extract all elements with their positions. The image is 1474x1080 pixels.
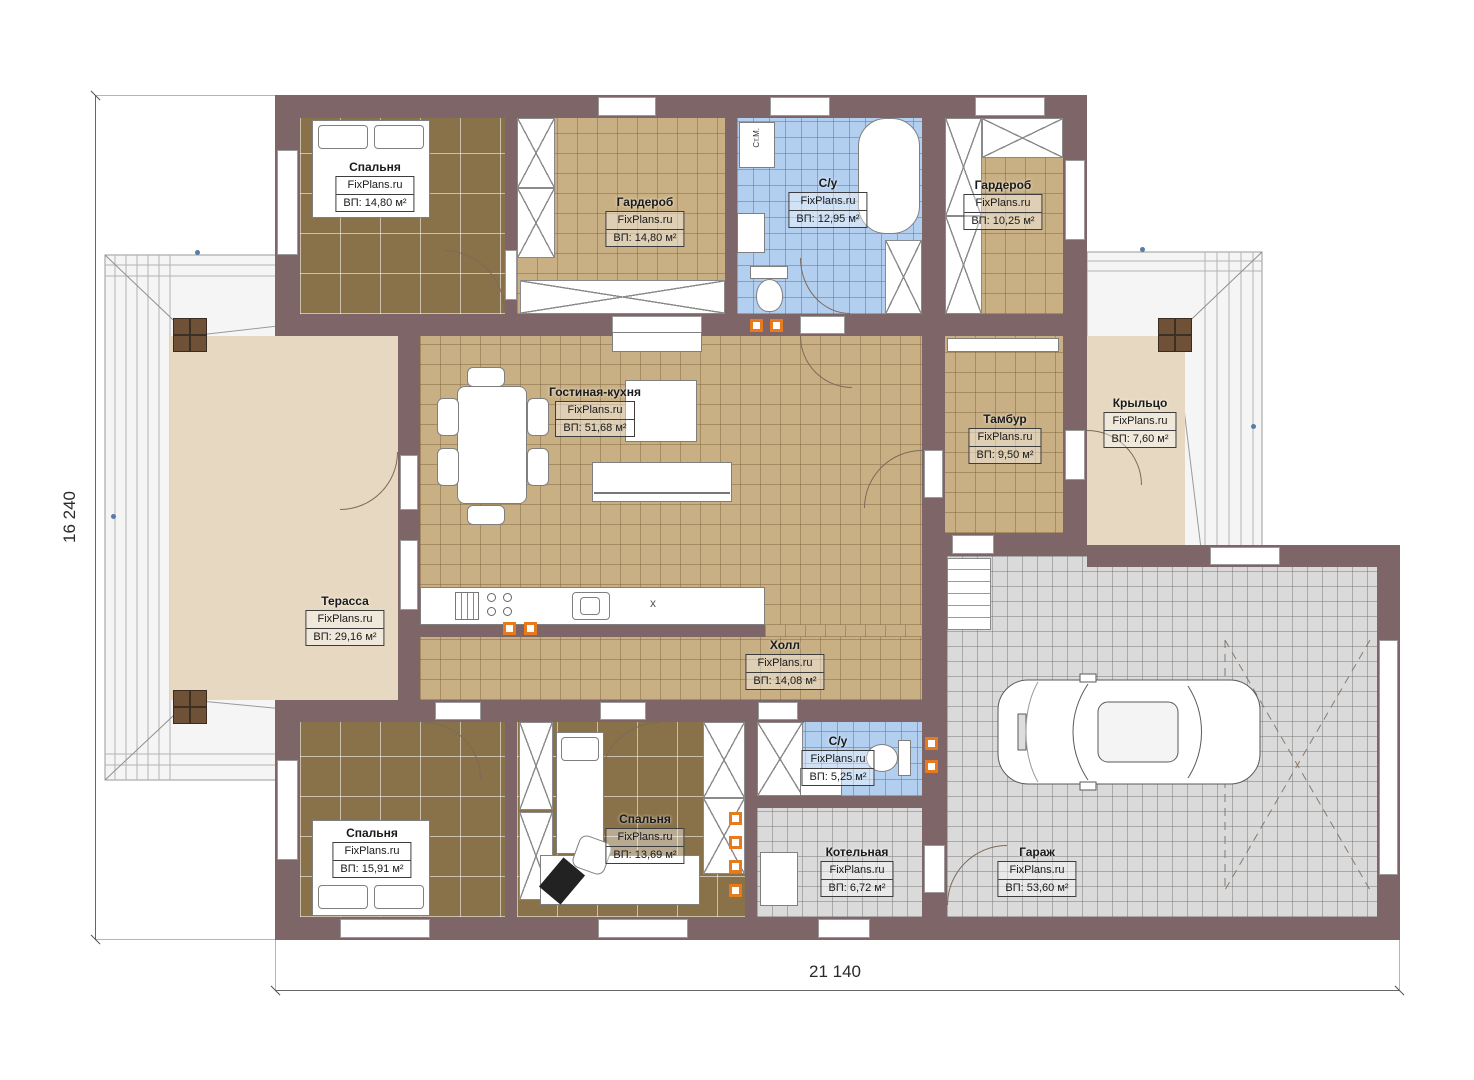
room-label-tambour: Тамбур FixPlans.ruВП: 9,50 м² — [968, 412, 1041, 464]
watermark: FixPlans.ru — [606, 829, 683, 847]
closet-icon — [520, 280, 725, 314]
door-bedroom-1 — [505, 250, 517, 300]
pillow — [561, 737, 599, 761]
door-boiler-garage — [924, 845, 945, 893]
room-name: Холл — [745, 638, 824, 652]
dimension-line-vertical — [95, 95, 96, 940]
wall-ward1-bath1 — [725, 118, 737, 314]
window-bedroom-1 — [277, 150, 298, 255]
wall-living-tambour — [922, 314, 945, 556]
room-name: Гараж — [997, 845, 1076, 859]
pillow — [374, 125, 424, 149]
room-area: ВП: 10,25 м² — [964, 213, 1041, 230]
window-bedroom-2-bottom — [340, 919, 430, 938]
wall-top — [275, 95, 1087, 118]
window-bathroom-1 — [770, 97, 830, 116]
terrace-column — [173, 690, 207, 724]
floor-plan: Ст.М. x — [0, 0, 1474, 1080]
room-area: ВП: 15,91 м² — [333, 861, 410, 878]
room-name: Спальня — [335, 160, 414, 174]
toilet-bowl-1 — [756, 279, 783, 312]
floor-hall-bridge — [765, 625, 922, 637]
extension-line — [275, 940, 276, 990]
door-bathroom-1 — [800, 316, 845, 334]
closet-icon — [703, 722, 745, 798]
window-wardrobe-1 — [598, 97, 656, 116]
door-boiler-exterior — [818, 919, 870, 938]
watermark: FixPlans.ru — [821, 862, 892, 880]
room-name: Гостиная-кухня — [549, 385, 641, 399]
room-name: Котельная — [820, 845, 893, 859]
door-tambour-garage — [952, 535, 994, 554]
garage-entry-steps — [947, 558, 991, 630]
vent-marker — [524, 622, 537, 635]
dishwasher-icon — [455, 592, 479, 620]
counter-mark: x — [650, 596, 656, 610]
chair — [467, 367, 505, 387]
room-name: С/у — [788, 176, 867, 190]
wall-living-terrace — [398, 314, 420, 722]
dining-table — [457, 386, 527, 504]
door-bathroom-2 — [758, 702, 798, 720]
watermark: FixPlans.ru — [802, 751, 873, 769]
vent-marker — [750, 319, 763, 332]
toilet-tank-1 — [750, 266, 788, 279]
stove-burner-icon — [487, 607, 496, 616]
boiler-unit — [760, 852, 798, 906]
wall-bed2-bed3 — [505, 722, 517, 917]
room-name: Терасса — [305, 594, 384, 608]
window-wardrobe-2-right — [1065, 160, 1085, 240]
chair — [467, 505, 505, 525]
vent-marker — [503, 622, 516, 635]
window-bedroom-3-bottom — [598, 919, 688, 938]
room-name: С/у — [801, 734, 874, 748]
roof-node-dot — [1251, 424, 1256, 429]
vent-marker — [729, 884, 742, 897]
vent-marker — [729, 812, 742, 825]
room-area: ВП: 14,08 м² — [746, 673, 823, 690]
room-area: ВП: 53,60 м² — [998, 880, 1075, 897]
door-terrace — [400, 455, 418, 510]
room-name: Гардероб — [605, 195, 684, 209]
room-label-bathroom-2: С/у FixPlans.ruВП: 5,25 м² — [801, 734, 874, 786]
tv-bench — [612, 332, 702, 352]
door-tambour-porch — [1065, 430, 1085, 480]
room-label-garage: Гараж FixPlans.ruВП: 53,60 м² — [997, 845, 1076, 897]
room-area: ВП: 14,80 м² — [606, 230, 683, 247]
room-label-bedroom-2: Спальня FixPlans.ruВП: 15,91 м² — [332, 826, 411, 878]
stove-burner-icon — [487, 593, 496, 602]
dimension-height: 16 240 — [60, 467, 80, 567]
room-label-bedroom-3: Спальня FixPlans.ruВП: 13,69 м² — [605, 812, 684, 864]
room-label-bedroom-1: Спальня FixPlans.ruВП: 14,80 м² — [335, 160, 414, 212]
pillow — [318, 885, 368, 909]
vent-marker — [925, 760, 938, 773]
wall-bath1-ward2 — [922, 95, 945, 336]
stove-burner-icon — [503, 607, 512, 616]
pillow — [318, 125, 368, 149]
chair — [527, 448, 549, 486]
closet-icon — [982, 118, 1063, 158]
floor-hall — [420, 637, 922, 700]
room-label-terrace: Терасса FixPlans.ruВП: 29,16 м² — [305, 594, 384, 646]
kitchen-sink-basin — [580, 597, 600, 615]
chair — [437, 448, 459, 486]
closet-icon — [945, 216, 982, 314]
room-label-living-kitchen: Гостиная-кухня FixPlans.ruВП: 51,68 м² — [549, 385, 641, 437]
wall-bed3-bath2 — [745, 722, 757, 917]
room-area: ВП: 29,16 м² — [306, 629, 383, 646]
watermark: FixPlans.ru — [789, 193, 866, 211]
watermark: FixPlans.ru — [306, 611, 383, 629]
room-label-wardrobe-2: Гардероб FixPlans.ruВП: 10,25 м² — [963, 178, 1042, 230]
extension-line — [1399, 940, 1400, 990]
watermark: FixPlans.ru — [606, 212, 683, 230]
room-name: Тамбур — [968, 412, 1041, 426]
dimension-width: 21 140 — [760, 962, 910, 982]
room-area: ВП: 12,95 м² — [789, 211, 866, 228]
room-name: Гардероб — [963, 178, 1042, 192]
room-label-boiler-room: Котельная FixPlans.ruВП: 6,72 м² — [820, 845, 893, 897]
room-area: ВП: 5,25 м² — [802, 769, 873, 786]
room-area: ВП: 7,60 м² — [1104, 431, 1175, 448]
toilet-tank-2 — [898, 740, 911, 776]
roof-node-dot — [111, 514, 116, 519]
watermark: FixPlans.ru — [998, 862, 1075, 880]
room-area: ВП: 6,72 м² — [821, 880, 892, 897]
vent-marker — [729, 836, 742, 849]
closet-icon — [519, 722, 553, 810]
room-label-hall: Холл FixPlans.ruВП: 14,08 м² — [745, 638, 824, 690]
watermark: FixPlans.ru — [746, 655, 823, 673]
room-area: ВП: 14,80 м² — [336, 195, 413, 212]
watermark: FixPlans.ru — [969, 429, 1040, 447]
door-bedroom-2 — [435, 702, 481, 720]
wall-tambour-bottom — [922, 533, 1087, 556]
vent-marker — [770, 319, 783, 332]
room-area: ВП: 13,69 м² — [606, 847, 683, 864]
sofa-back-line — [594, 492, 730, 494]
room-area: ВП: 9,50 м² — [969, 447, 1040, 464]
watermark: FixPlans.ru — [333, 843, 410, 861]
dimension-line-horizontal — [275, 990, 1400, 991]
room-label-bathroom-1: С/у FixPlans.ruВП: 12,95 м² — [788, 176, 867, 228]
room-name: Спальня — [605, 812, 684, 826]
watermark: FixPlans.ru — [964, 195, 1041, 213]
window-garage-top — [1210, 547, 1280, 565]
tambour-shelf — [947, 338, 1059, 352]
watermark: FixPlans.ru — [336, 177, 413, 195]
door-tambour-living — [924, 450, 943, 498]
stove-burner-icon — [503, 593, 512, 602]
watermark: FixPlans.ru — [1104, 413, 1175, 431]
car-icon — [992, 670, 1267, 795]
roof-node-dot — [195, 250, 200, 255]
watermark: FixPlans.ru — [556, 402, 633, 420]
window-terrace — [400, 540, 418, 610]
wall-kitchen-hall — [420, 625, 765, 637]
garage-gate — [1379, 640, 1398, 875]
window-bedroom-2-left — [277, 760, 298, 860]
washing-machine-label: Ст.М. — [752, 128, 761, 148]
extension-line — [95, 95, 275, 96]
room-name: Спальня — [332, 826, 411, 840]
closet-icon — [885, 240, 922, 314]
pillow — [374, 885, 424, 909]
closet-icon — [517, 188, 555, 258]
room-label-wardrobe-1: Гардероб FixPlans.ruВП: 14,80 м² — [605, 195, 684, 247]
room-label-porch: Крыльцо FixPlans.ruВП: 7,60 м² — [1103, 396, 1176, 448]
extension-line — [95, 939, 275, 940]
closet-icon — [517, 118, 555, 188]
chair — [437, 398, 459, 436]
window-wardrobe-2 — [975, 97, 1045, 116]
sofa — [592, 462, 732, 502]
shower-stall — [757, 722, 803, 796]
chair — [527, 398, 549, 436]
room-name: Крыльцо — [1103, 396, 1176, 410]
door-bedroom-3 — [600, 702, 646, 720]
terrace-column — [173, 318, 207, 352]
porch-column — [1158, 318, 1192, 352]
vent-marker — [729, 860, 742, 873]
sink-bathroom-1 — [737, 213, 765, 253]
room-area: ВП: 51,68 м² — [556, 420, 633, 437]
wall-bath2-boiler — [757, 796, 922, 808]
roof-node-dot — [1140, 247, 1145, 252]
vent-marker — [925, 737, 938, 750]
